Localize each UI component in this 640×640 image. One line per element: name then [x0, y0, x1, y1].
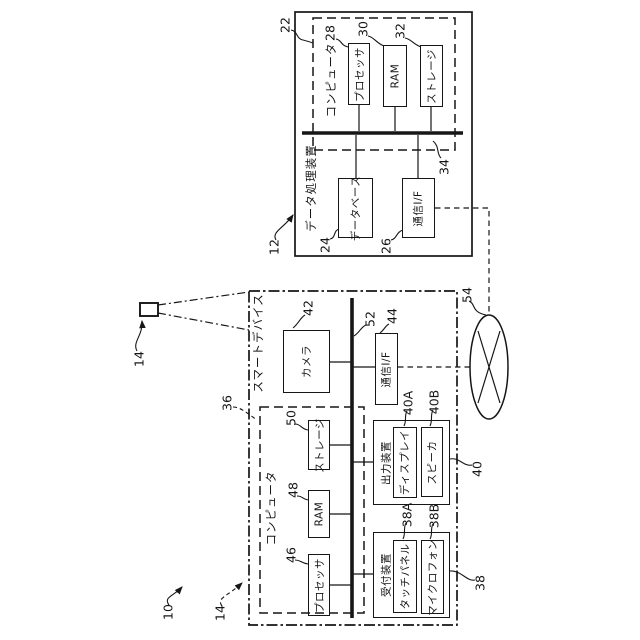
ref-36: 36 — [220, 395, 235, 411]
ref-14-icon: 14 — [132, 351, 147, 367]
ref-10: 10 — [161, 604, 176, 620]
processor-box-top: プロセッサ — [348, 43, 370, 105]
ref-40B: 40B — [427, 390, 442, 414]
computer-top-title: コンピュータ — [323, 43, 339, 118]
processor-top-label: プロセッサ — [352, 47, 367, 102]
ref-34: 34 — [437, 159, 452, 175]
ram-box-smart: RAM — [308, 490, 330, 538]
comm-if-smart-label: 通信I/F — [379, 351, 394, 387]
ref-28: 28 — [323, 25, 338, 41]
camera-label: カメラ — [299, 345, 314, 378]
display-box: ディスプレイ — [393, 427, 417, 498]
ref-24: 24 — [318, 237, 333, 253]
ref-54: 54 — [460, 287, 475, 303]
storage-box-smart: ストレージ — [308, 420, 330, 470]
camera-box: カメラ — [283, 330, 330, 393]
ref-50: 50 — [284, 410, 299, 426]
comm-if-box-top: 通信I/F — [402, 178, 435, 238]
ref-42: 42 — [301, 300, 316, 316]
input-device-label: 受付装置 — [379, 553, 394, 597]
output-device-box: 出力装置 ディスプレイ スピーカ — [373, 420, 450, 505]
ref-52: 52 — [363, 311, 378, 327]
ref-44: 44 — [385, 308, 400, 324]
processor-box-smart: プロセッサ — [308, 554, 330, 616]
ref-22: 22 — [278, 17, 293, 33]
ref-48: 48 — [286, 482, 301, 498]
smart-device-icon — [140, 303, 158, 316]
comm-if-top-label: 通信I/F — [411, 190, 426, 226]
ram-top-label: RAM — [389, 64, 401, 89]
processor-smart-label: プロセッサ — [312, 558, 327, 613]
speaker-box: スピーカ — [421, 427, 443, 497]
ref-40A: 40A — [401, 391, 416, 415]
storage-smart-label: ストレージ — [312, 418, 327, 473]
network-symbol — [470, 315, 508, 419]
diagram-lines — [0, 0, 640, 640]
ref-38: 38 — [473, 575, 488, 591]
comm-if-box-smart: 通信I/F — [375, 333, 398, 405]
ref-32: 32 — [393, 23, 408, 39]
output-device-label: 出力装置 — [379, 441, 394, 485]
speaker-label: スピーカ — [425, 440, 440, 484]
microphone-label: マイクロフォン — [425, 539, 440, 616]
ref-30: 30 — [356, 21, 371, 37]
microphone-box: マイクロフォン — [421, 540, 444, 614]
touch-panel-box: タッチパネル — [393, 540, 417, 613]
computer-smart-title: コンピュータ — [263, 471, 279, 546]
touch-panel-label: タッチパネル — [398, 544, 413, 610]
ref-38B: 38B — [427, 504, 442, 528]
ref-40: 40 — [470, 461, 485, 477]
ref-14-box: 14 — [213, 605, 228, 621]
ref-38A: 38A — [400, 503, 415, 527]
ref-46: 46 — [284, 547, 299, 563]
input-device-box: 受付装置 タッチパネル マイクロフォン — [373, 532, 450, 618]
ram-smart-label: RAM — [313, 502, 325, 527]
storage-top-label: ストレージ — [424, 49, 439, 104]
ref-12: 12 — [267, 239, 282, 255]
ram-box-top: RAM — [383, 45, 407, 107]
display-label: ディスプレイ — [398, 430, 413, 495]
ref-26: 26 — [379, 238, 394, 254]
database-box: データベース — [338, 178, 373, 238]
smart-device-title: スマートデバイス — [250, 293, 266, 392]
patent-figure: データ処理装置 コンピュータ プロセッサ RAM ストレージ データベース 通信… — [0, 0, 640, 640]
database-label: データベース — [348, 175, 363, 240]
data-processing-device-title: データ処理装置 — [303, 144, 319, 232]
storage-box-top: ストレージ — [420, 45, 443, 107]
